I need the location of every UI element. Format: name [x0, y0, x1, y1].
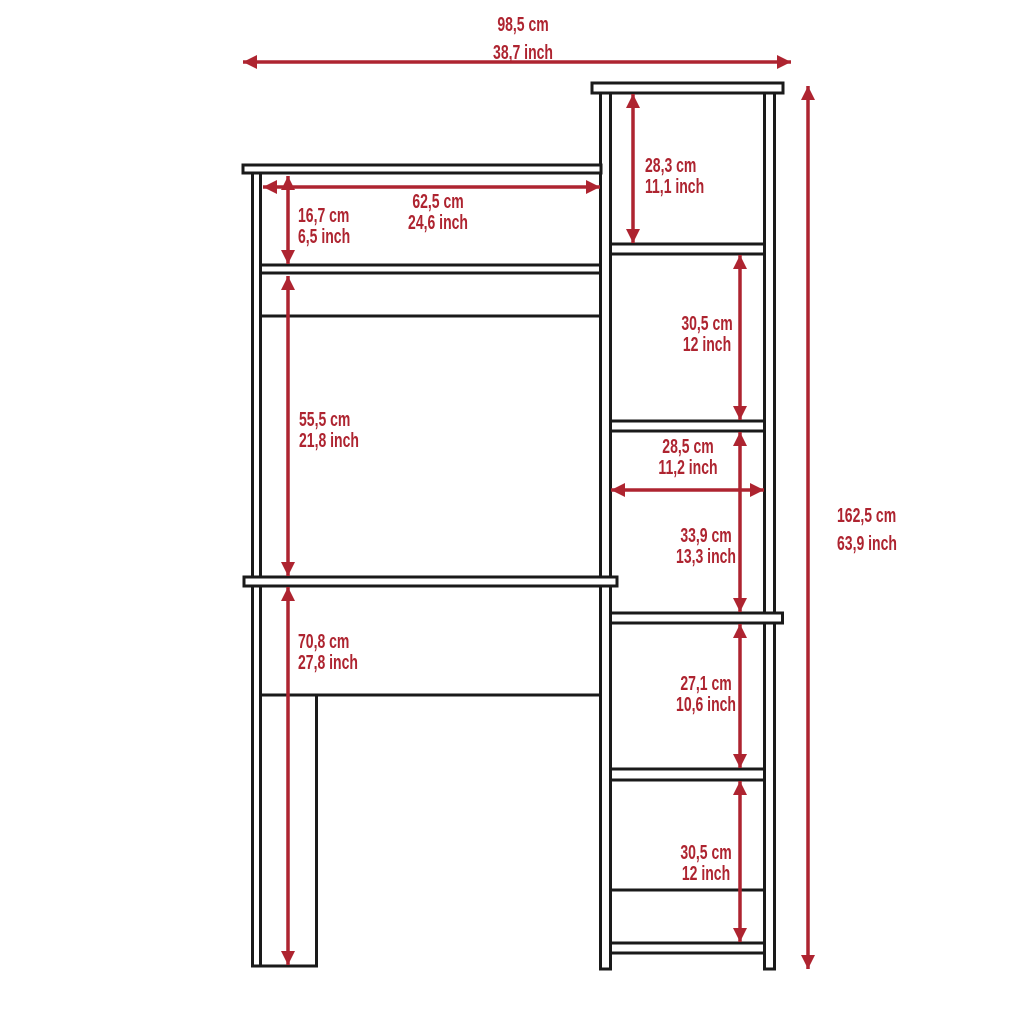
dim-overall-width-label: 98,5 cm 38,7 inch: [493, 11, 553, 67]
dim-cm-value: 33,9 cm: [676, 526, 736, 547]
dim-shelf-4-label: 27,1 cm 10,6 inch: [676, 674, 736, 716]
dim-inch-value: 11,1 inch: [645, 177, 704, 198]
dimension-diagram: 98,5 cm 38,7 inch 162,5 cm 63,9 inch 62,…: [0, 0, 1024, 1024]
dim-inch-value: 21,8 inch: [299, 431, 359, 452]
dim-desk-clearance-label: 70,8 cm 27,8 inch: [298, 632, 358, 674]
bookcase-bottom-stretcher: [611, 943, 765, 953]
dimension-arrows: [243, 62, 808, 969]
dim-cm-value: 98,5 cm: [493, 11, 553, 39]
dim-inch-value: 12 inch: [680, 864, 731, 885]
desk-top-surface: [244, 577, 617, 586]
bookcase-shelf-2: [611, 421, 765, 431]
dim-inch-value: 13,3 inch: [676, 547, 736, 568]
dim-inch-value: 10,6 inch: [676, 695, 736, 716]
dim-inch-value: 63,9 inch: [837, 530, 897, 558]
dim-inch-value: 12 inch: [681, 335, 732, 356]
dim-hutch-width-label: 62,5 cm 24,6 inch: [408, 192, 468, 234]
dim-shelf-2-label: 30,5 cm 12 inch: [681, 314, 732, 356]
dim-hutch-cubby-label: 16,7 cm 6,5 inch: [298, 206, 350, 248]
dim-cm-value: 27,1 cm: [676, 674, 736, 695]
dim-cm-value: 28,5 cm: [658, 437, 717, 458]
dim-inch-value: 24,6 inch: [408, 213, 468, 234]
dim-cm-value: 16,7 cm: [298, 206, 350, 227]
dim-cm-value: 28,3 cm: [645, 156, 704, 177]
hutch-shelf: [261, 265, 601, 273]
dim-hutch-opening-label: 55,5 cm 21,8 inch: [299, 410, 359, 452]
dim-cm-value: 55,5 cm: [299, 410, 359, 431]
dim-cm-value: 30,5 cm: [681, 314, 732, 335]
bookcase-left-panel: [601, 93, 611, 969]
hutch-top-board: [243, 165, 601, 173]
dim-shelf-5-label: 30,5 cm 12 inch: [680, 843, 731, 885]
dim-shelf-3-label: 33,9 cm 13,3 inch: [676, 526, 736, 568]
dim-shelf-top-label: 28,3 cm 11,1 inch: [645, 156, 704, 198]
dim-cm-value: 162,5 cm: [837, 502, 897, 530]
desk-drawing: [243, 165, 617, 966]
dim-shelf-width-label: 28,5 cm 11,2 inch: [658, 437, 717, 479]
bookcase-shelf-1: [611, 244, 765, 254]
dim-inch-value: 38,7 inch: [493, 39, 553, 67]
dim-overall-height-label: 162,5 cm 63,9 inch: [837, 502, 897, 558]
dim-cm-value: 62,5 cm: [408, 192, 468, 213]
bookcase-shelf-4: [611, 769, 765, 780]
dim-cm-value: 30,5 cm: [680, 843, 731, 864]
dim-inch-value: 27,8 inch: [298, 653, 358, 674]
bookcase-right-panel: [765, 93, 775, 969]
dim-cm-value: 70,8 cm: [298, 632, 358, 653]
dim-inch-value: 11,2 inch: [658, 458, 717, 479]
bookcase-top-cap: [592, 83, 783, 93]
dim-inch-value: 6,5 inch: [298, 227, 350, 248]
bookcase-shelf-3-wide: [611, 613, 783, 623]
